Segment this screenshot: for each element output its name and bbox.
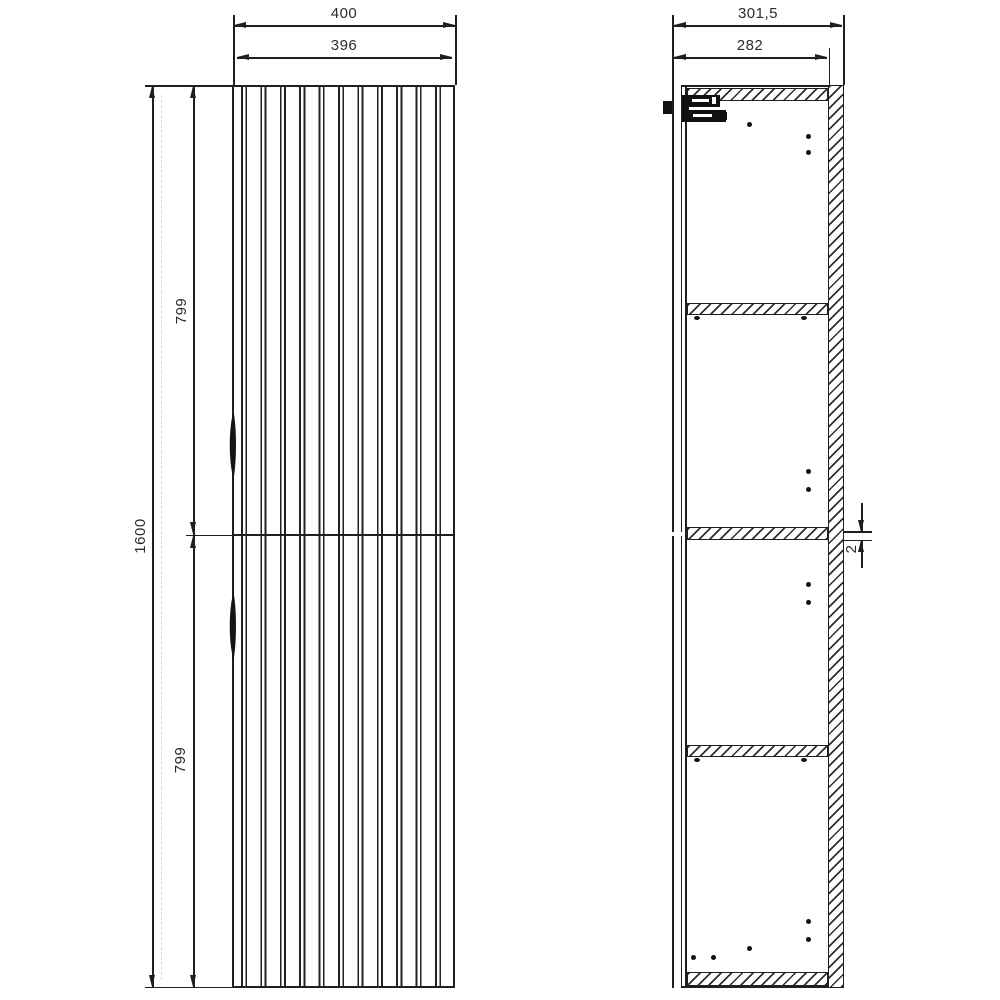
drill-hole-dot bbox=[711, 955, 716, 960]
dim-arrow-up-icon bbox=[190, 86, 196, 98]
fluted-door-pattern bbox=[241, 87, 454, 986]
dim-label-396: 396 bbox=[324, 38, 364, 54]
handle-upper bbox=[226, 409, 239, 481]
technical-drawing-canvas: 400 396 1600 799 799 bbox=[0, 0, 1000, 1000]
drill-hole-dot bbox=[691, 955, 696, 960]
dim-label-301-5: 301,5 bbox=[728, 6, 788, 22]
drill-hole-dot bbox=[806, 937, 811, 942]
extension-line bbox=[455, 15, 457, 85]
dim-label-799-lower: 799 bbox=[173, 730, 189, 790]
dim-arrow-right-icon bbox=[830, 22, 842, 28]
door-side-profile-upper bbox=[672, 85, 682, 532]
dim-label-2: 2 bbox=[844, 529, 860, 569]
dim-arrow-left-icon bbox=[674, 22, 686, 28]
back-panel-section bbox=[828, 85, 844, 988]
extension-line bbox=[843, 15, 845, 85]
dim-arrow-down-icon bbox=[190, 522, 196, 534]
dim-arrow-left-icon bbox=[234, 22, 246, 28]
shelf-section-middle bbox=[687, 527, 829, 540]
shelf-section-top bbox=[687, 303, 829, 315]
cabinet-bottom-edge bbox=[672, 986, 843, 988]
drill-hole-dot bbox=[806, 919, 811, 924]
drill-hole-dot bbox=[747, 946, 752, 951]
door-divider-line bbox=[232, 534, 455, 537]
dim-label-1600: 1600 bbox=[133, 506, 149, 566]
shelf-section-lower bbox=[687, 745, 829, 757]
dimension-line bbox=[674, 57, 827, 59]
dim-arrow-right-icon bbox=[440, 54, 452, 60]
extension-line bbox=[145, 987, 233, 989]
dimension-line bbox=[674, 25, 842, 27]
dimension-line bbox=[152, 86, 154, 987]
dim-arrow-down-icon bbox=[190, 975, 196, 987]
shelf-pin-dot bbox=[801, 758, 807, 762]
handle-lower bbox=[226, 590, 239, 662]
dimension-line bbox=[234, 25, 455, 27]
dim-label-282: 282 bbox=[730, 38, 770, 54]
extension-line bbox=[145, 85, 233, 87]
drill-hole-dot bbox=[806, 469, 811, 474]
hinge-detail-icon bbox=[660, 92, 728, 130]
dim-label-799-upper: 799 bbox=[174, 281, 190, 341]
dim-arrow-up-icon bbox=[149, 86, 155, 98]
dim-label-400: 400 bbox=[324, 6, 364, 22]
drill-hole-dot bbox=[806, 582, 811, 587]
dim-arrow-down-icon bbox=[149, 975, 155, 987]
dim-arrow-left-icon bbox=[674, 54, 686, 60]
extension-line bbox=[829, 48, 831, 85]
shelf-pin-dot bbox=[694, 316, 700, 320]
dim-arrow-up-icon bbox=[190, 536, 196, 548]
drill-hole-dot bbox=[806, 134, 811, 139]
drill-hole-dot bbox=[747, 122, 752, 127]
drill-hole-dot bbox=[806, 487, 811, 492]
dim-arrow-right-icon bbox=[443, 22, 455, 28]
shelf-pin-dot bbox=[801, 316, 807, 320]
centerline bbox=[161, 95, 162, 980]
shelf-pin-dot bbox=[694, 758, 700, 762]
drill-hole-dot bbox=[806, 150, 811, 155]
drill-hole-dot bbox=[806, 600, 811, 605]
door-side-profile-lower bbox=[672, 536, 682, 988]
dim-arrow-left-icon bbox=[237, 54, 249, 60]
dimension-line bbox=[237, 57, 452, 59]
dim-arrow-right-icon bbox=[815, 54, 827, 60]
bottom-panel-section bbox=[687, 972, 829, 986]
